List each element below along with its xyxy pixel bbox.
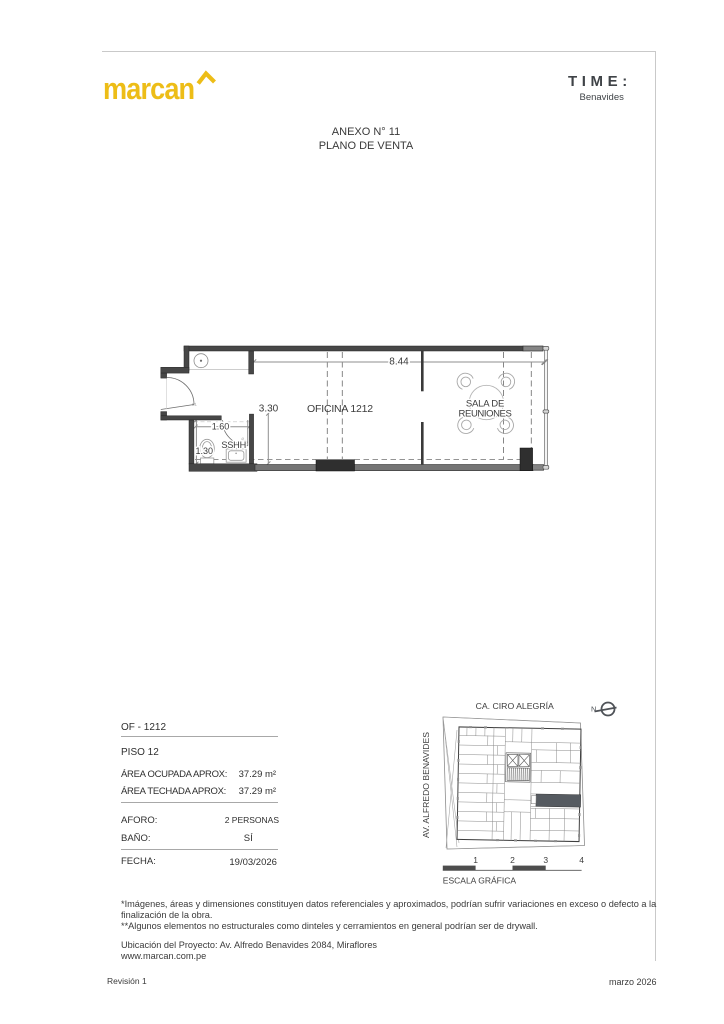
svg-text:1.30: 1.30 [196,446,214,456]
svg-text:ESCALA GRÁFICA: ESCALA GRÁFICA [443,876,517,886]
svg-text:8.44: 8.44 [389,357,409,368]
svg-text:N: N [591,705,596,714]
svg-text:AV. ALFREDO BENAVIDES: AV. ALFREDO BENAVIDES [421,732,431,838]
svg-text:SSHH: SSHH [221,440,246,450]
svg-text:3.30: 3.30 [259,403,279,414]
svg-text:3: 3 [543,855,548,865]
svg-text:1.60: 1.60 [212,421,230,431]
svg-text:4: 4 [579,855,584,865]
svg-text:1: 1 [473,855,478,865]
svg-text:OFICINA 1212: OFICINA 1212 [307,403,373,415]
svg-text:REUNIONES: REUNIONES [459,409,512,420]
svg-text:CA. CIRO ALEGRÍA: CA. CIRO ALEGRÍA [476,701,554,711]
svg-text:2: 2 [510,855,515,865]
